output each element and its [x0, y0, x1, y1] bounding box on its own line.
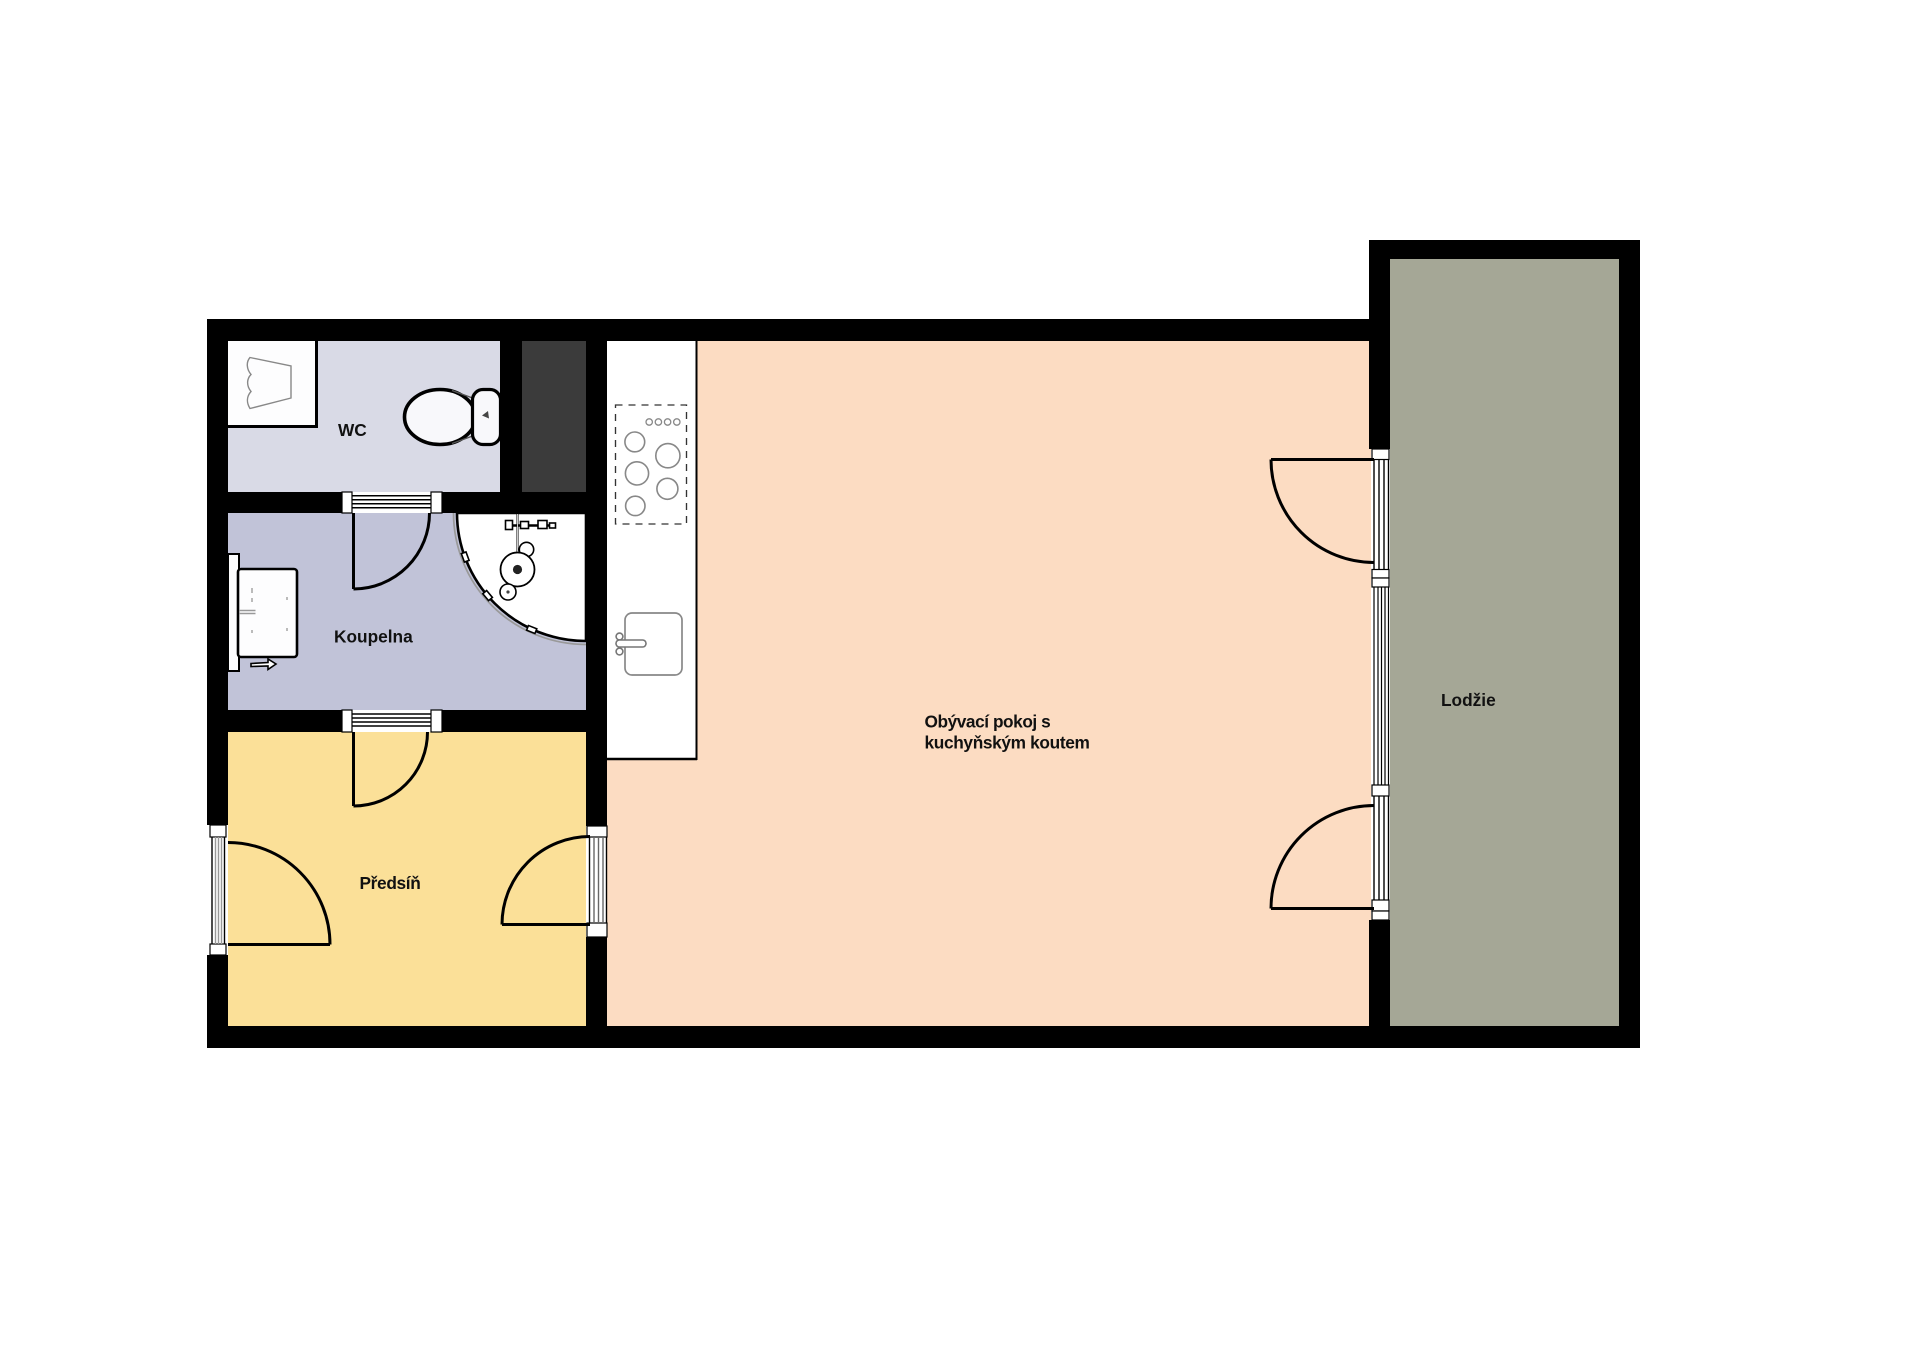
- svg-text:Obývací pokoj s: Obývací pokoj s: [925, 712, 1051, 732]
- svg-text:Koupelna: Koupelna: [334, 627, 413, 647]
- svg-text:WC: WC: [338, 420, 367, 440]
- svg-text:kuchyňským koutem: kuchyňským koutem: [925, 733, 1090, 753]
- svg-text:Lodžie: Lodžie: [1441, 690, 1496, 710]
- svg-text:Předsíň: Předsíň: [360, 873, 421, 893]
